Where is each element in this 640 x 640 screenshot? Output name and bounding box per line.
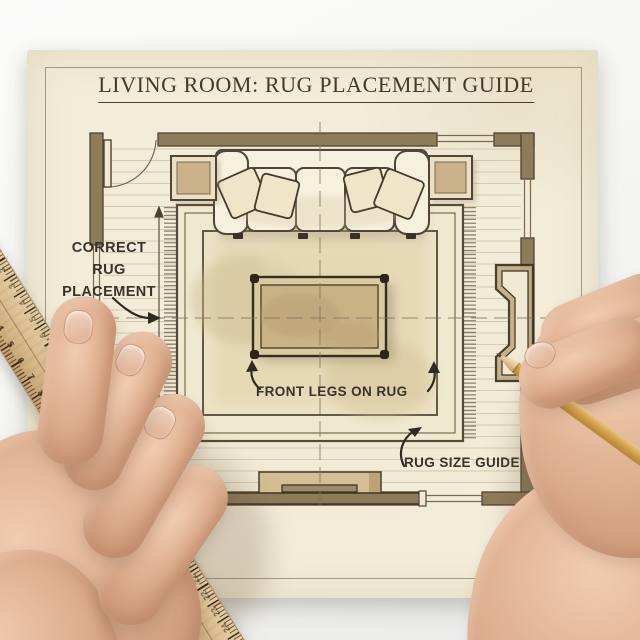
photo-scene: LIVING ROOM: RUG PLACEMENT GUIDE	[0, 0, 640, 640]
page-title-text: LIVING ROOM: RUG PLACEMENT GUIDE	[98, 72, 534, 103]
label-rug-size-guide: RUG SIZE GUIDE	[404, 455, 520, 470]
side-table-left	[171, 156, 220, 204]
page-title: LIVING ROOM: RUG PLACEMENT GUIDE	[98, 72, 534, 103]
sofa	[214, 150, 429, 240]
label-correct-rug-placement: CORRECT RUG PLACEMENT	[48, 238, 170, 303]
pillow-icon	[254, 173, 300, 219]
side-table-right	[429, 156, 476, 203]
label-front-legs-on-rug: FRONT LEGS ON RUG	[256, 384, 408, 399]
